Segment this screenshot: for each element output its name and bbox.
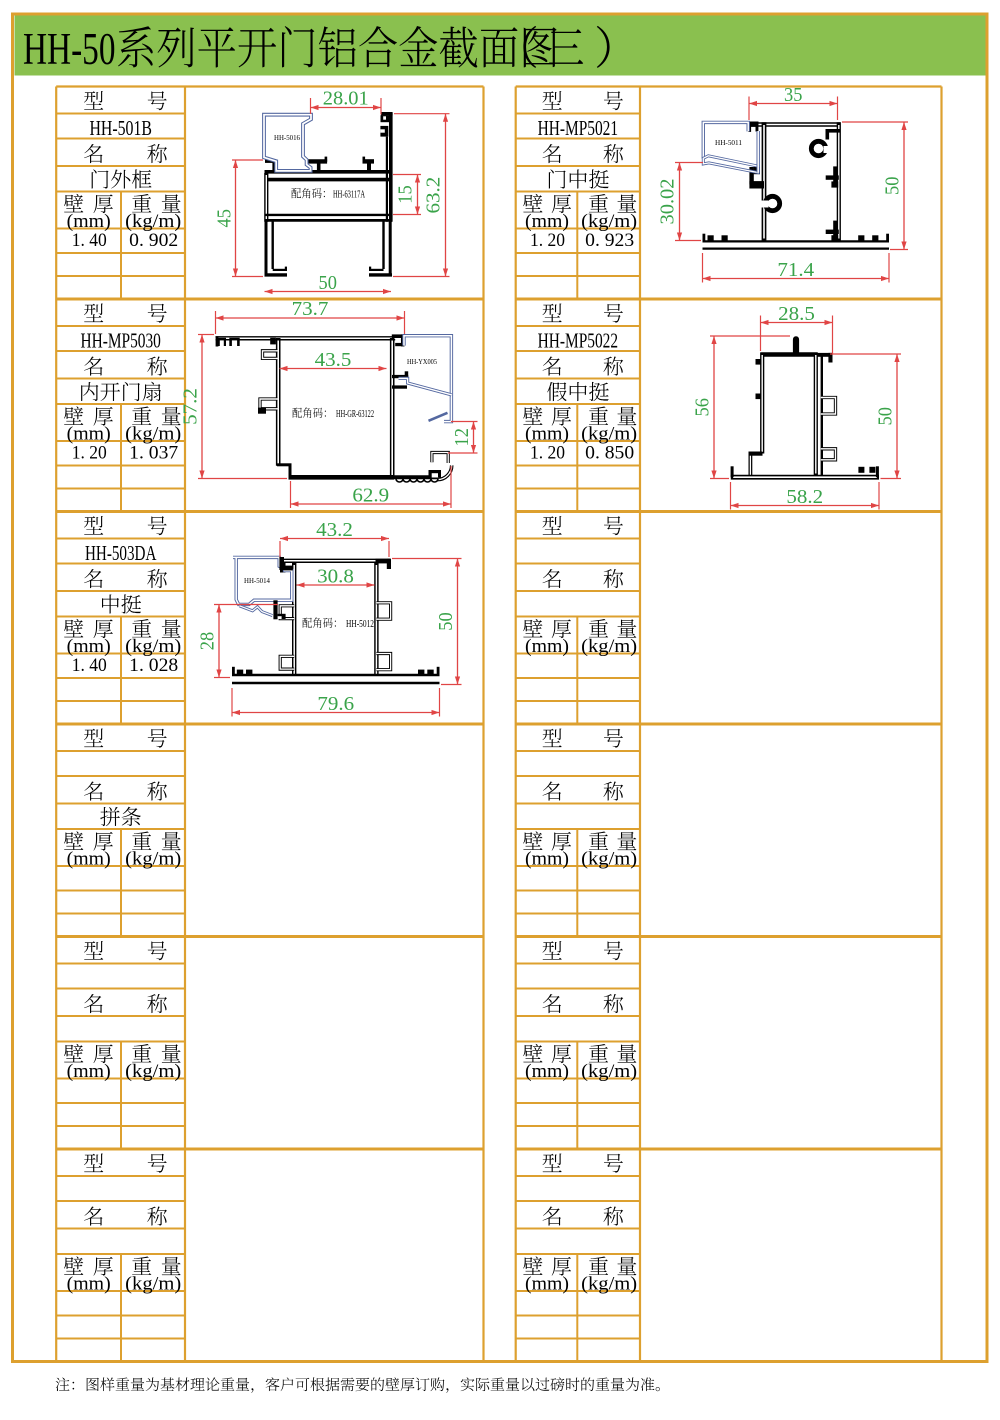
- svg-text:(kg/m): (kg/m): [581, 849, 637, 870]
- svg-text:58.2: 58.2: [786, 487, 823, 508]
- svg-text:50: 50: [436, 612, 457, 630]
- svg-text:50: 50: [883, 177, 904, 195]
- svg-text:30.02: 30.02: [658, 179, 679, 225]
- svg-text:HH-5016: HH-5016: [274, 133, 300, 142]
- svg-text:(mm): (mm): [525, 849, 569, 870]
- svg-text:HH-MP5030: HH-MP5030: [81, 329, 161, 353]
- svg-text:73.7: 73.7: [292, 299, 329, 320]
- svg-text:57.2: 57.2: [181, 388, 202, 425]
- svg-text:50: 50: [876, 407, 897, 425]
- svg-text:(mm): (mm): [525, 1061, 569, 1082]
- svg-text:43.2: 43.2: [316, 520, 353, 541]
- svg-text:HH-GR-63122: HH-GR-63122: [336, 409, 374, 420]
- svg-text:50: 50: [319, 273, 337, 294]
- svg-text:35: 35: [784, 85, 802, 106]
- svg-text:0. 850: 0. 850: [585, 443, 634, 464]
- svg-text:(kg/m): (kg/m): [125, 424, 181, 445]
- svg-text:(mm): (mm): [525, 1274, 569, 1295]
- svg-text:HH-5011: HH-5011: [715, 138, 742, 147]
- svg-text:(mm): (mm): [67, 636, 111, 657]
- svg-text:HH-63117A: HH-63117A: [333, 190, 366, 201]
- svg-text:(kg/m): (kg/m): [581, 636, 637, 657]
- svg-text:HH-MP5021: HH-MP5021: [538, 116, 618, 140]
- svg-text:HH-MP5022: HH-MP5022: [538, 329, 618, 353]
- svg-text:(kg/m): (kg/m): [581, 1061, 637, 1082]
- svg-text:15: 15: [396, 185, 417, 203]
- svg-text:(mm): (mm): [67, 1061, 111, 1082]
- svg-text:HH-5014: HH-5014: [244, 576, 270, 585]
- svg-text:(kg/m): (kg/m): [125, 1274, 181, 1295]
- svg-text:(mm): (mm): [67, 1274, 111, 1295]
- svg-text:HH-5012: HH-5012: [346, 619, 374, 630]
- svg-text:(mm): (mm): [525, 636, 569, 657]
- svg-text:1. 20: 1. 20: [530, 230, 565, 251]
- svg-text:1. 40: 1. 40: [72, 230, 107, 251]
- svg-text:56: 56: [693, 398, 714, 417]
- svg-text:(kg/m): (kg/m): [125, 1061, 181, 1082]
- svg-text:(mm): (mm): [67, 849, 111, 870]
- svg-text:28: 28: [198, 632, 219, 650]
- svg-text:(kg/m): (kg/m): [125, 849, 181, 870]
- svg-text:HH-501B: HH-501B: [89, 116, 152, 140]
- svg-text:0. 923: 0. 923: [585, 230, 634, 251]
- svg-text:71.4: 71.4: [777, 260, 814, 281]
- svg-text:1. 028: 1. 028: [129, 655, 178, 676]
- svg-text:(mm): (mm): [525, 424, 569, 445]
- svg-text:(kg/m): (kg/m): [125, 211, 181, 232]
- svg-text:(kg/m): (kg/m): [581, 424, 637, 445]
- svg-text:1. 20: 1. 20: [72, 443, 107, 464]
- svg-text:12: 12: [452, 428, 473, 446]
- svg-text:(mm): (mm): [525, 211, 569, 232]
- svg-text:1. 40: 1. 40: [72, 655, 107, 676]
- svg-text:(kg/m): (kg/m): [581, 1274, 637, 1295]
- svg-text:(mm): (mm): [67, 211, 111, 232]
- svg-text:HH-50: HH-50: [23, 24, 115, 74]
- svg-text:28.01: 28.01: [323, 89, 369, 110]
- svg-text:79.6: 79.6: [317, 694, 354, 715]
- svg-text:28.5: 28.5: [778, 304, 815, 325]
- svg-text:63.2: 63.2: [424, 177, 445, 214]
- svg-text:1. 037: 1. 037: [129, 443, 178, 464]
- svg-text:30.8: 30.8: [317, 567, 354, 588]
- svg-text:(kg/m): (kg/m): [125, 636, 181, 657]
- svg-text:(mm): (mm): [67, 424, 111, 445]
- svg-text:1. 20: 1. 20: [530, 443, 565, 464]
- svg-text:62.9: 62.9: [352, 486, 389, 507]
- svg-text:HH-YX005: HH-YX005: [407, 358, 437, 366]
- svg-text:0. 902: 0. 902: [129, 230, 178, 251]
- svg-text:43.5: 43.5: [315, 350, 352, 371]
- svg-text:45: 45: [215, 209, 236, 227]
- svg-text:HH-503DA: HH-503DA: [85, 541, 157, 565]
- svg-text:(kg/m): (kg/m): [581, 211, 637, 232]
